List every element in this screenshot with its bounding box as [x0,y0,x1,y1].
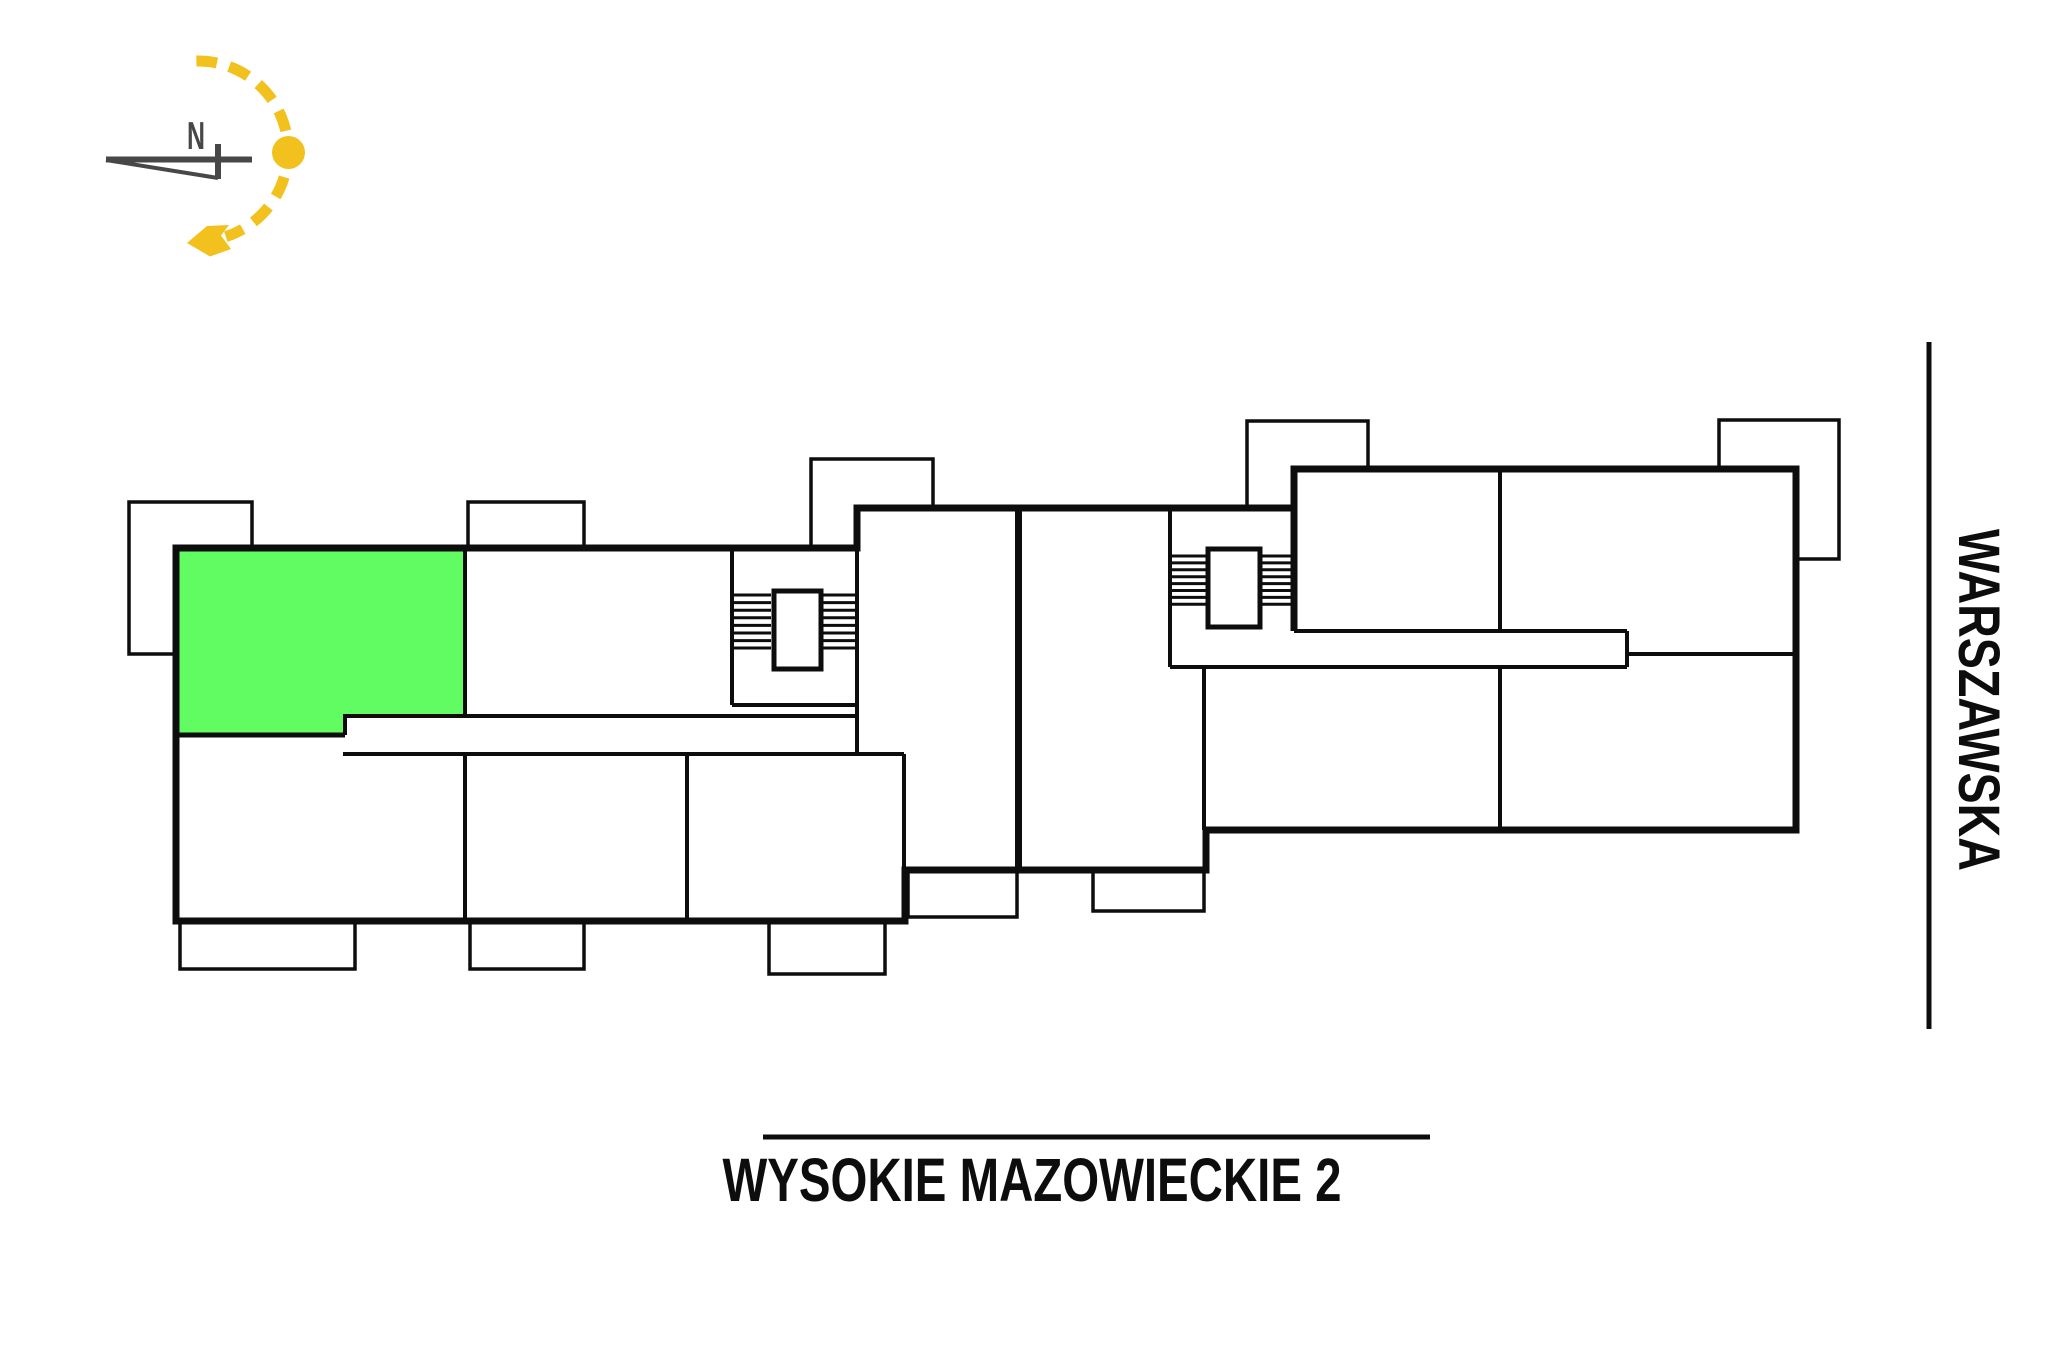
svg-text:WARSZAWSKA: WARSZAWSKA [1946,529,2011,871]
svg-text:N: N [187,115,205,158]
svg-text:WYSOKIE MAZOWIECKIE 2: WYSOKIE MAZOWIECKIE 2 [723,1146,1342,1214]
